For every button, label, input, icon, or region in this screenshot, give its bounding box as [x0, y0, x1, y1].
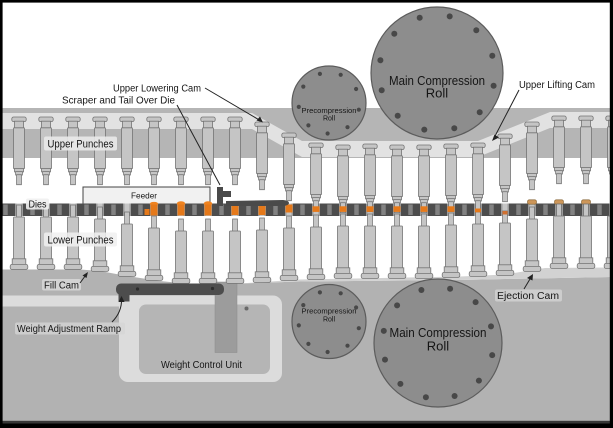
svg-text:Upper Punches: Upper Punches: [48, 139, 114, 151]
svg-text:Roll: Roll: [323, 116, 336, 123]
svg-text:Dies: Dies: [29, 200, 47, 211]
svg-text:Roll: Roll: [323, 317, 336, 324]
svg-text:Precompression: Precompression: [302, 108, 357, 115]
svg-text:Upper Lowering Cam: Upper Lowering Cam: [113, 84, 201, 95]
svg-text:Weight Adjustment Ramp: Weight Adjustment Ramp: [17, 324, 121, 335]
svg-text:Upper Lifting Cam: Upper Lifting Cam: [519, 80, 595, 91]
svg-text:Lower Punches: Lower Punches: [48, 235, 114, 247]
svg-text:Roll: Roll: [427, 339, 450, 354]
svg-text:Precompression: Precompression: [302, 309, 357, 316]
svg-text:Scraper and Tail Over Die: Scraper and Tail Over Die: [62, 96, 175, 107]
svg-text:Fill Cam: Fill Cam: [44, 281, 79, 292]
svg-text:Weight Control Unit: Weight Control Unit: [161, 359, 242, 371]
svg-text:Ejection Cam: Ejection Cam: [497, 291, 559, 302]
svg-text:Feeder: Feeder: [131, 192, 157, 201]
svg-text:Roll: Roll: [426, 86, 449, 101]
